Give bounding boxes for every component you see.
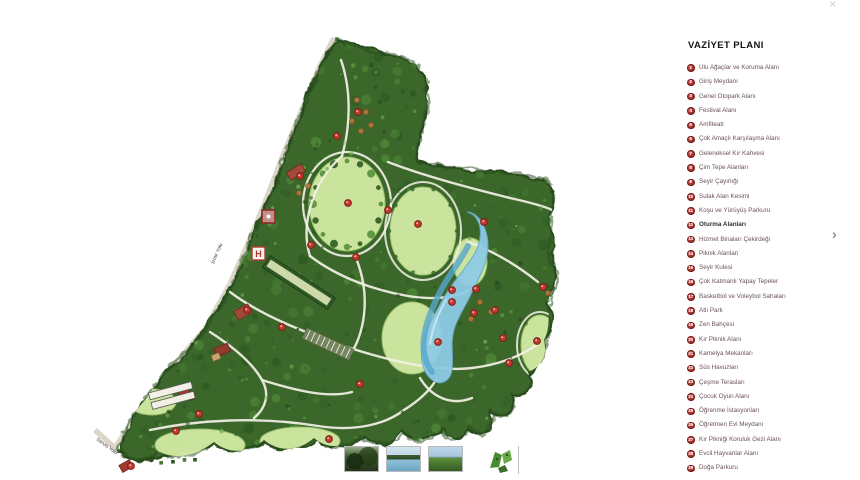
legend-item-label: Kır Piknik Alanı: [699, 337, 741, 343]
map-marker: [449, 287, 456, 294]
close-icon[interactable]: ✕: [829, 0, 837, 9]
legend-item-label: Süs Havuzları: [699, 365, 738, 371]
legend-item-label: Seyir Kulesi: [699, 265, 732, 271]
legend-item: 1Ulu Ağaçlar ve Koruma Alanı: [684, 61, 856, 75]
map-marker: [308, 242, 315, 249]
legend-item: 13Hizmet Binaları Çekirdeği: [684, 233, 856, 247]
legend-bullet: 9: [687, 179, 695, 187]
map-marker: [415, 221, 422, 228]
legend-item: 17Basketbol ve Voleybol Sahaları: [684, 290, 856, 304]
legend-bullet: 19: [687, 322, 695, 330]
legend-item: 7Geleneksel Kır Kahvesi: [684, 147, 856, 161]
map-marker: [385, 207, 392, 214]
legend-item-label: Basketbol ve Voleybol Sahaları: [699, 294, 786, 300]
map-marker: [353, 254, 360, 261]
map-marker: [506, 360, 513, 367]
divider: [518, 446, 519, 474]
legend-item: 23Çeşme Terasları: [684, 376, 856, 390]
legend-item: 10Sulak Alan Kesimi: [684, 190, 856, 204]
legend-item-label: Amfiteatr: [699, 122, 724, 128]
legend-bullet: 12: [687, 222, 695, 230]
svg-text:H: H: [255, 249, 262, 259]
legend-item: 8Çim Tepe Alanları: [684, 161, 856, 175]
legend-item: 27Kır Pikniği Koruluk Gezi Alanı: [684, 433, 856, 447]
legend-item: 19Zen Bahçesi: [684, 318, 856, 332]
legend-item-label: Doğa Parkuru: [699, 465, 738, 471]
legend-item-label: Çok Amaçlı Karşılaşma Alanı: [699, 136, 780, 142]
legend-item-label: Kamelya Mekanları: [699, 351, 753, 357]
map-marker: [471, 310, 478, 317]
legend-item-label: Piknik Alanları: [699, 251, 739, 257]
site-plan-map: H İzmir YoluServis Yolu: [0, 0, 680, 480]
legend-item-label: Sulak Alan Kesimi: [699, 194, 749, 200]
legend-bullet: 1: [687, 64, 695, 72]
map-marker: [334, 133, 341, 140]
map-marker: [244, 307, 251, 314]
legend-item-label: Atlı Park: [699, 308, 723, 314]
legend-bullet: 4: [687, 107, 695, 115]
legend-item: 21Kamelya Mekanları: [684, 347, 856, 361]
legend-bullet: 27: [687, 436, 695, 444]
thumbnail-photo-lake[interactable]: [386, 446, 421, 472]
thumbnail-photo-meadow[interactable]: [428, 446, 463, 472]
map-marker: [500, 335, 507, 342]
map-marker: [297, 173, 304, 180]
legend-bullet: 10: [687, 193, 695, 201]
map-marker: [173, 428, 180, 435]
legend-item: 12Oturma Alanları: [684, 218, 856, 232]
legend-item: 6Çok Amaçlı Karşılaşma Alanı: [684, 132, 856, 146]
legend-item: 29Doğa Parkuru: [684, 461, 856, 475]
legend-item-label: Zen Bahçesi: [699, 322, 734, 328]
legend-bullet: 20: [687, 336, 695, 344]
site-plan-page: H İzmir YoluServis Yolu VAZİYET PLANI 1U…: [0, 0, 860, 480]
legend-item-label: Genel Otopark Alanı: [699, 94, 756, 100]
map-marker: [279, 324, 286, 331]
legend-bullet: 5: [687, 122, 695, 130]
map-marker: [357, 381, 364, 388]
legend-item-label: Festival Alanı: [699, 108, 736, 114]
legend-item-label: Ulu Ağaçlar ve Koruma Alanı: [699, 65, 779, 71]
legend-panel: VAZİYET PLANI 1Ulu Ağaçlar ve Koruma Ala…: [684, 40, 856, 476]
legend-bullet: 3: [687, 93, 695, 101]
map-marker: [345, 200, 352, 207]
legend-item-label: Öğretmen Evi Meydanı: [699, 422, 763, 428]
legend-item: 18Atlı Park: [684, 304, 856, 318]
legend-bullet: 11: [687, 207, 695, 215]
mini-plan-icon[interactable]: [485, 446, 515, 474]
legend-item: 5Amfiteatr: [684, 118, 856, 132]
map-marker: [481, 219, 488, 226]
legend-bullet: 28: [687, 450, 695, 458]
legend-item-label: Geleneksel Kır Kahvesi: [699, 151, 764, 157]
legend-bullet: 16: [687, 279, 695, 287]
page-title: VAZİYET PLANI: [688, 40, 856, 51]
map-marker: [355, 109, 362, 116]
legend-bullet: 22: [687, 365, 695, 373]
map-marker: [435, 339, 442, 346]
legend-item-label: Giriş Meydanı: [699, 79, 738, 85]
legend-item: 24Çocuk Oyun Alanı: [684, 390, 856, 404]
legend-items: 1Ulu Ağaçlar ve Koruma Alanı2Giriş Meyda…: [684, 61, 856, 476]
legend-bullet: 26: [687, 422, 695, 430]
map-marker: [326, 436, 333, 443]
legend-bullet: 24: [687, 393, 695, 401]
legend-item-label: Çeşme Terasları: [699, 380, 745, 386]
map-marker: [449, 299, 456, 306]
legend-item: 16Çok Katmanlı Yapay Tepeler: [684, 275, 856, 289]
legend-item: 14Piknik Alanları: [684, 247, 856, 261]
legend-item: 20Kır Piknik Alanı: [684, 333, 856, 347]
map-marker: [128, 463, 135, 470]
legend-item-label: Evcil Hayvanlar Alanı: [699, 451, 758, 457]
legend-item: 3Genel Otopark Alanı: [684, 90, 856, 104]
legend-item: 28Evcil Hayvanlar Alanı: [684, 447, 856, 461]
thumbnail-photo-forest[interactable]: [344, 446, 379, 472]
map-marker: [540, 284, 547, 291]
map-marker: [492, 307, 499, 314]
legend-item-label: Koşu ve Yürüyüş Parkuru: [699, 208, 770, 214]
legend-bullet: 15: [687, 265, 695, 273]
road-label: İzmir Yolu: [209, 242, 224, 265]
legend-item: 2Giriş Meydanı: [684, 75, 856, 89]
carousel-next-icon[interactable]: ›: [832, 227, 837, 241]
map-marker: [534, 338, 541, 345]
legend-bullet: 21: [687, 350, 695, 358]
legend-item-label: Hizmet Binaları Çekirdeği: [699, 237, 770, 243]
legend-bullet: 23: [687, 379, 695, 387]
legend-item: 9Seyir Çayırlığı: [684, 175, 856, 189]
legend-bullet: 8: [687, 164, 695, 172]
legend-item: 11Koşu ve Yürüyüş Parkuru: [684, 204, 856, 218]
legend-item: 4Festival Alanı: [684, 104, 856, 118]
legend-item: 22Süs Havuzları: [684, 361, 856, 375]
legend-bullet: 13: [687, 236, 695, 244]
legend-bullet: 14: [687, 250, 695, 258]
legend-item-label: Kır Pikniği Koruluk Gezi Alanı: [699, 437, 781, 443]
site-plan-map-area: H İzmir YoluServis Yolu: [0, 0, 680, 480]
legend-item-label: Çocuk Oyun Alanı: [699, 394, 749, 400]
legend-bullet: 18: [687, 307, 695, 315]
legend-item-label: Çim Tepe Alanları: [699, 165, 748, 171]
legend-item: 25Öğrenme İstasyonları: [684, 404, 856, 418]
legend-item: 15Seyir Kulesi: [684, 261, 856, 275]
legend-bullet: 2: [687, 79, 695, 87]
map-marker: [196, 411, 203, 418]
legend-bullet: 17: [687, 293, 695, 301]
legend-bullet: 25: [687, 408, 695, 416]
legend-item-label: Seyir Çayırlığı: [699, 179, 739, 185]
photo-thumbnails: [344, 446, 519, 474]
legend-item-label: Çok Katmanlı Yapay Tepeler: [699, 279, 778, 285]
legend-item-label: Öğrenme İstasyonları: [699, 408, 759, 414]
legend-item: 26Öğretmen Evi Meydanı: [684, 418, 856, 432]
legend-bullet: 29: [687, 465, 695, 473]
map-marker: [473, 286, 480, 293]
legend-bullet: 6: [687, 136, 695, 144]
legend-bullet: 7: [687, 150, 695, 158]
legend-item-label: Oturma Alanları: [699, 222, 746, 228]
